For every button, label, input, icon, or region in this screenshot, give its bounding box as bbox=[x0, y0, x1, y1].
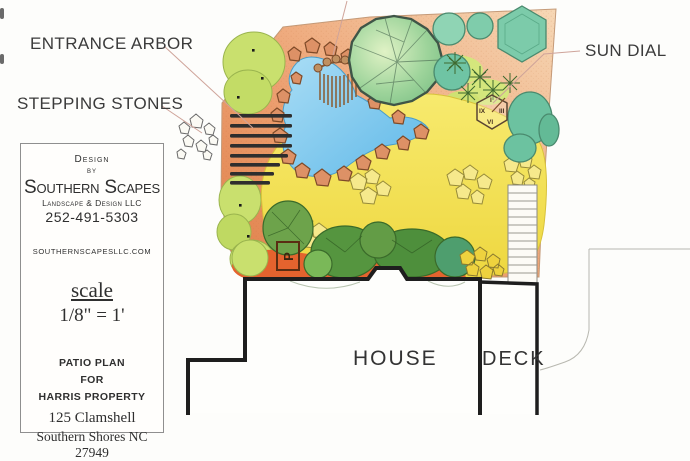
title-block: Design by Southern Scapes Landscape & De… bbox=[20, 143, 164, 433]
title-by: by bbox=[21, 165, 163, 175]
scan-artifact bbox=[0, 54, 4, 64]
deck-label: DECK bbox=[482, 348, 546, 371]
title-design: Design bbox=[21, 154, 163, 165]
stepping-stones-label: STEPPING STONES bbox=[17, 94, 183, 114]
boardwalk-steps bbox=[508, 185, 537, 283]
entrance-arbor-label: ENTRANCE ARBOR bbox=[30, 34, 193, 54]
company-name: Southern Scapes bbox=[21, 177, 163, 199]
address-line1: 125 Clamshell bbox=[21, 410, 163, 427]
sundial-numeral-right: III bbox=[499, 108, 504, 115]
house-interior bbox=[190, 270, 535, 414]
sundial-numeral-bottom: VI bbox=[487, 119, 493, 126]
project-title-line2: for bbox=[21, 374, 163, 386]
existing-structure-lines bbox=[540, 249, 690, 370]
company-website: southernscapesllc.com bbox=[21, 247, 163, 256]
address-line2: Southern Shores NC 27949 bbox=[21, 429, 163, 461]
scale-value: 1/8" = 1' bbox=[21, 305, 163, 327]
sundial-numeral-left: IX bbox=[479, 108, 485, 115]
scale-label: scale bbox=[21, 278, 163, 303]
house-label: HOUSE bbox=[353, 347, 438, 371]
company-phone: 252-491-5303 bbox=[21, 209, 163, 225]
patio-plan-sheet: ENTRANCE ARBOR STEPPING STONES SUN DIAL … bbox=[0, 0, 690, 415]
project-title-line3: Harris Property bbox=[21, 391, 163, 403]
stepping-stones-shapes bbox=[177, 114, 218, 160]
sun-dial-label: SUN DIAL bbox=[585, 41, 667, 61]
scan-artifact bbox=[0, 8, 4, 19]
project-title-line1: Patio Plan bbox=[21, 357, 163, 369]
parking-marker: P bbox=[276, 241, 300, 271]
sundial-numeral-top: I bbox=[490, 97, 492, 104]
left-bed-shrub bbox=[232, 240, 268, 276]
company-subtitle: Landscape & Design LLC bbox=[21, 198, 163, 208]
parking-marker-letter: P bbox=[280, 252, 295, 261]
